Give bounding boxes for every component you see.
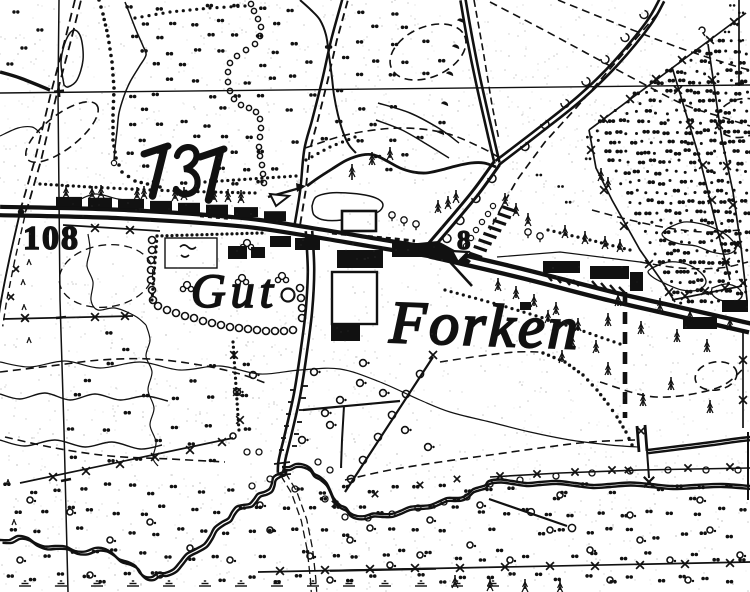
svg-text:Gut: Gut [191, 265, 278, 318]
svg-text:Forken: Forken [388, 289, 582, 362]
svg-text:108: 108 [23, 220, 80, 257]
svg-text:8: 8 [457, 225, 471, 255]
